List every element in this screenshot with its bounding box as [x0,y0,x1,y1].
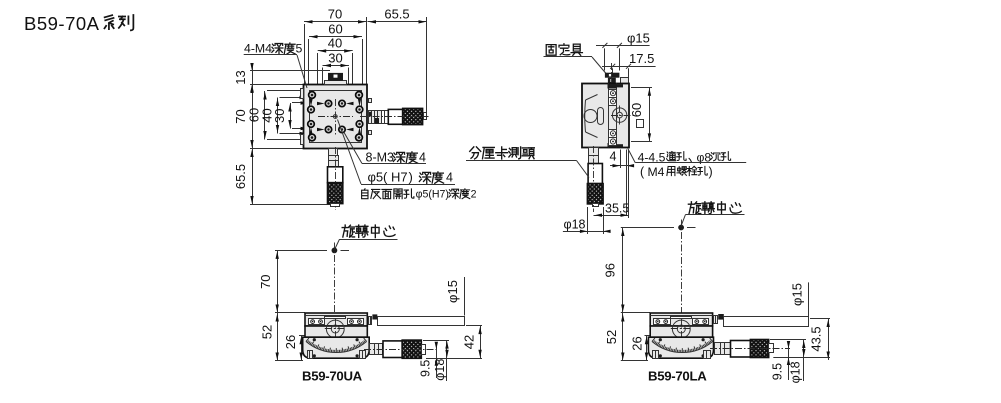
svg-text:5: 5 [296,42,303,56]
svg-text:65.5: 65.5 [384,7,409,22]
svg-text:8-M3: 8-M3 [366,151,395,165]
svg-text:φ15: φ15 [790,283,805,306]
svg-text:26: 26 [630,336,645,350]
svg-text:B59-70UA: B59-70UA [302,369,363,384]
svg-text:H7: H7 [391,170,408,185]
svg-text:φ18: φ18 [788,361,802,383]
svg-text:4: 4 [419,151,426,165]
svg-text:52: 52 [604,330,619,344]
svg-text:26: 26 [283,335,298,349]
svg-text:40: 40 [328,36,342,51]
svg-text:52: 52 [260,325,275,339]
svg-text:70: 70 [258,274,273,288]
svg-text:B59-70LA: B59-70LA [648,369,707,384]
svg-text:9.5: 9.5 [418,360,432,377]
svg-text:M4: M4 [648,165,665,179]
svg-text:B59-70A: B59-70A [24,13,100,34]
svg-text:φ18: φ18 [564,218,586,232]
svg-text:9.5: 9.5 [770,363,784,380]
svg-text:30: 30 [328,50,342,65]
svg-text:35.5: 35.5 [605,202,629,216]
svg-text:φ5(H7): φ5(H7) [416,189,449,201]
svg-text:φ18: φ18 [433,359,447,381]
svg-text:φ15: φ15 [627,31,650,46]
svg-text:30: 30 [272,109,287,123]
svg-text:4: 4 [446,171,453,185]
svg-text:(: ( [383,170,388,185]
svg-text:60: 60 [328,22,342,37]
svg-text:43.5: 43.5 [809,326,824,351]
svg-text:13: 13 [233,70,248,84]
svg-text:60: 60 [629,103,644,117]
svg-text:4-M4: 4-M4 [244,42,272,56]
svg-text:φ5: φ5 [368,170,384,185]
svg-text:4: 4 [610,150,617,164]
svg-text:96: 96 [603,263,618,277]
svg-text:): ) [709,165,713,179]
svg-text:17.5: 17.5 [629,51,654,66]
svg-text:65.5: 65.5 [233,164,248,189]
svg-text:42: 42 [462,335,477,349]
svg-text:2: 2 [471,189,477,201]
svg-text:70: 70 [328,7,342,22]
svg-text:): ) [409,170,413,185]
svg-text:φ15: φ15 [445,280,460,303]
